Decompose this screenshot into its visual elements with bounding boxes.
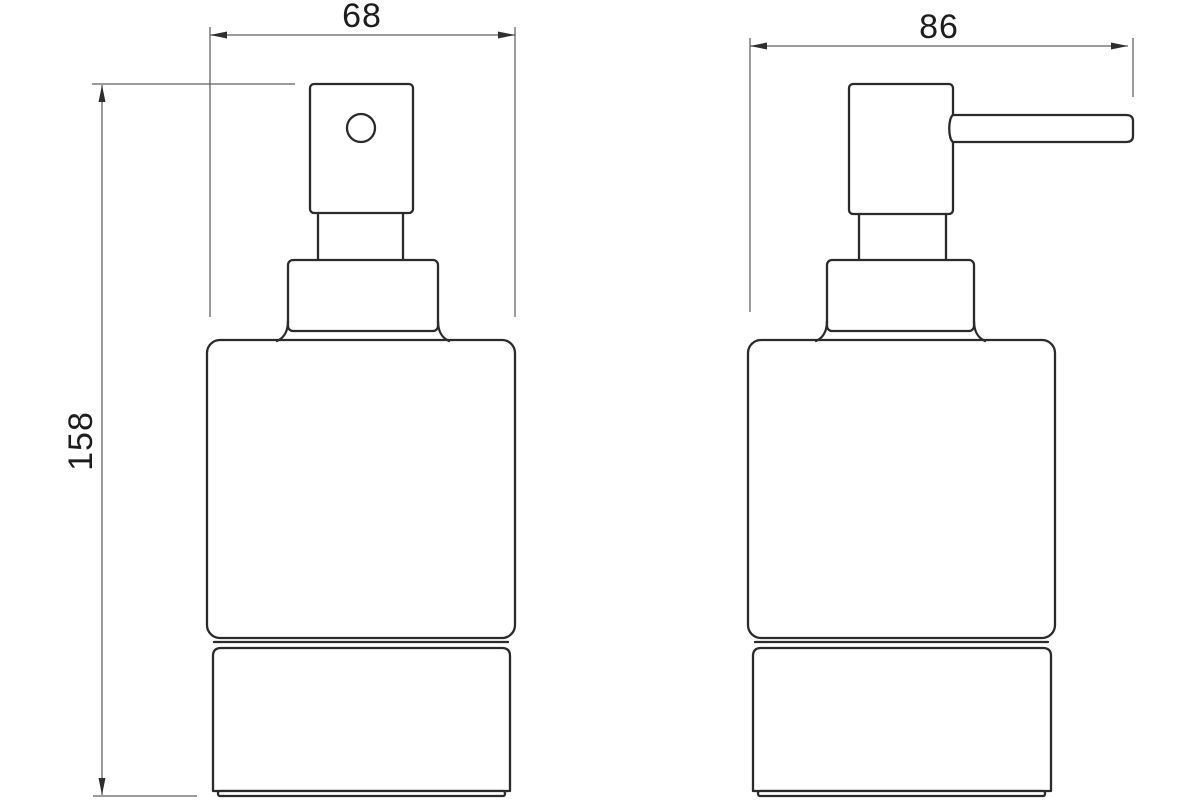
arrowhead-right-icon [1111, 43, 1128, 50]
front-pump-head [310, 84, 413, 213]
front-bottom-lip [218, 791, 505, 796]
side-pump-neck [859, 214, 946, 260]
side-nozzle-spout [949, 115, 1133, 142]
arrowhead-down-icon [99, 778, 106, 795]
arrowhead-right-icon [498, 32, 515, 39]
height-label: 158 [62, 411, 100, 471]
front-bottle-base [213, 648, 510, 791]
arrowhead-up-icon [99, 85, 106, 102]
arrowhead-left-icon [750, 43, 767, 50]
drawing-svg: 68 86 158 [0, 0, 1200, 800]
side-view [748, 84, 1133, 796]
arrowhead-left-icon [210, 32, 227, 39]
side-pump-head [849, 84, 953, 214]
side-bottle-base [753, 648, 1051, 791]
front-view [207, 84, 515, 796]
side-pump-collar [827, 260, 974, 331]
front-pump-neck [318, 213, 403, 260]
side-depth-label: 86 [919, 8, 959, 46]
technical-drawing-canvas: 68 86 158 [0, 0, 1200, 800]
front-pump-collar [288, 260, 438, 331]
front-bottle-body [207, 340, 515, 638]
side-bottom-lip [758, 791, 1045, 796]
front-width-label: 68 [342, 0, 382, 35]
side-bottle-body [748, 340, 1055, 638]
